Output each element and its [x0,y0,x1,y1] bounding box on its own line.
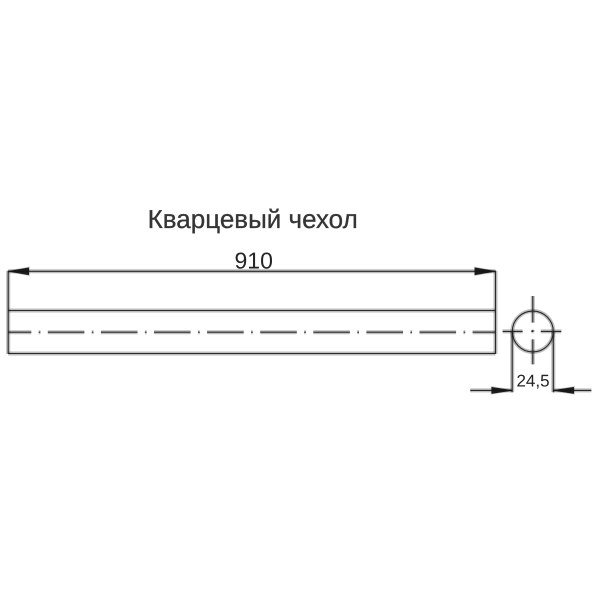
svg-text:24,5: 24,5 [516,372,549,391]
svg-text:Кварцевый чехол: Кварцевый чехол [148,204,358,234]
svg-text:910: 910 [235,248,273,274]
